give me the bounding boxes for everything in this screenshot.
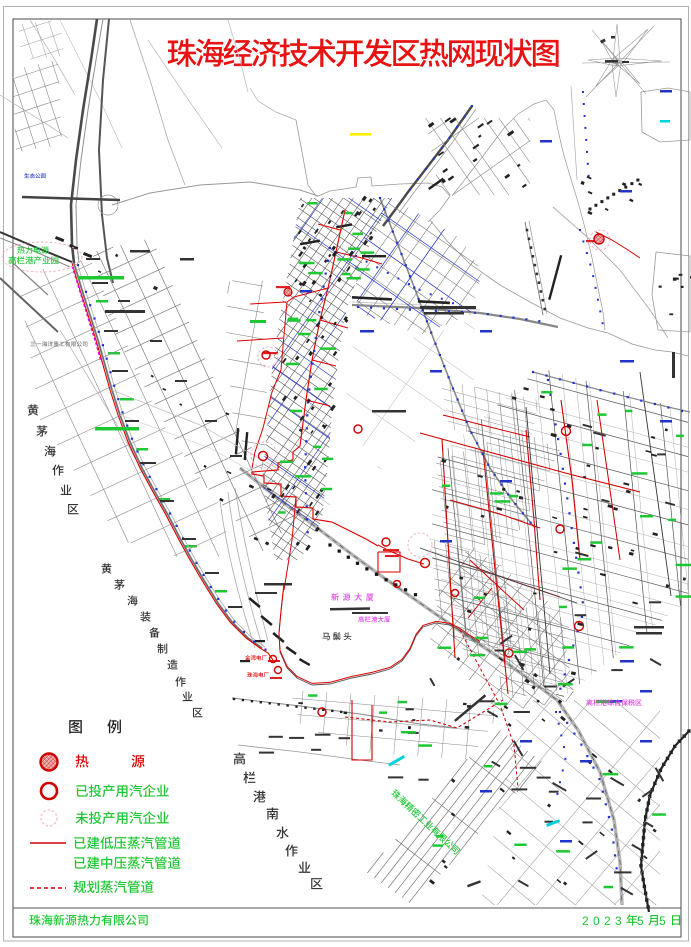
- svg-text:5: 5: [637, 914, 644, 928]
- svg-text:2: 2: [582, 914, 589, 928]
- svg-text:0: 0: [593, 914, 600, 928]
- svg-text:2: 2: [604, 914, 611, 928]
- svg-text:5: 5: [659, 914, 666, 928]
- svg-text:3: 3: [615, 914, 622, 928]
